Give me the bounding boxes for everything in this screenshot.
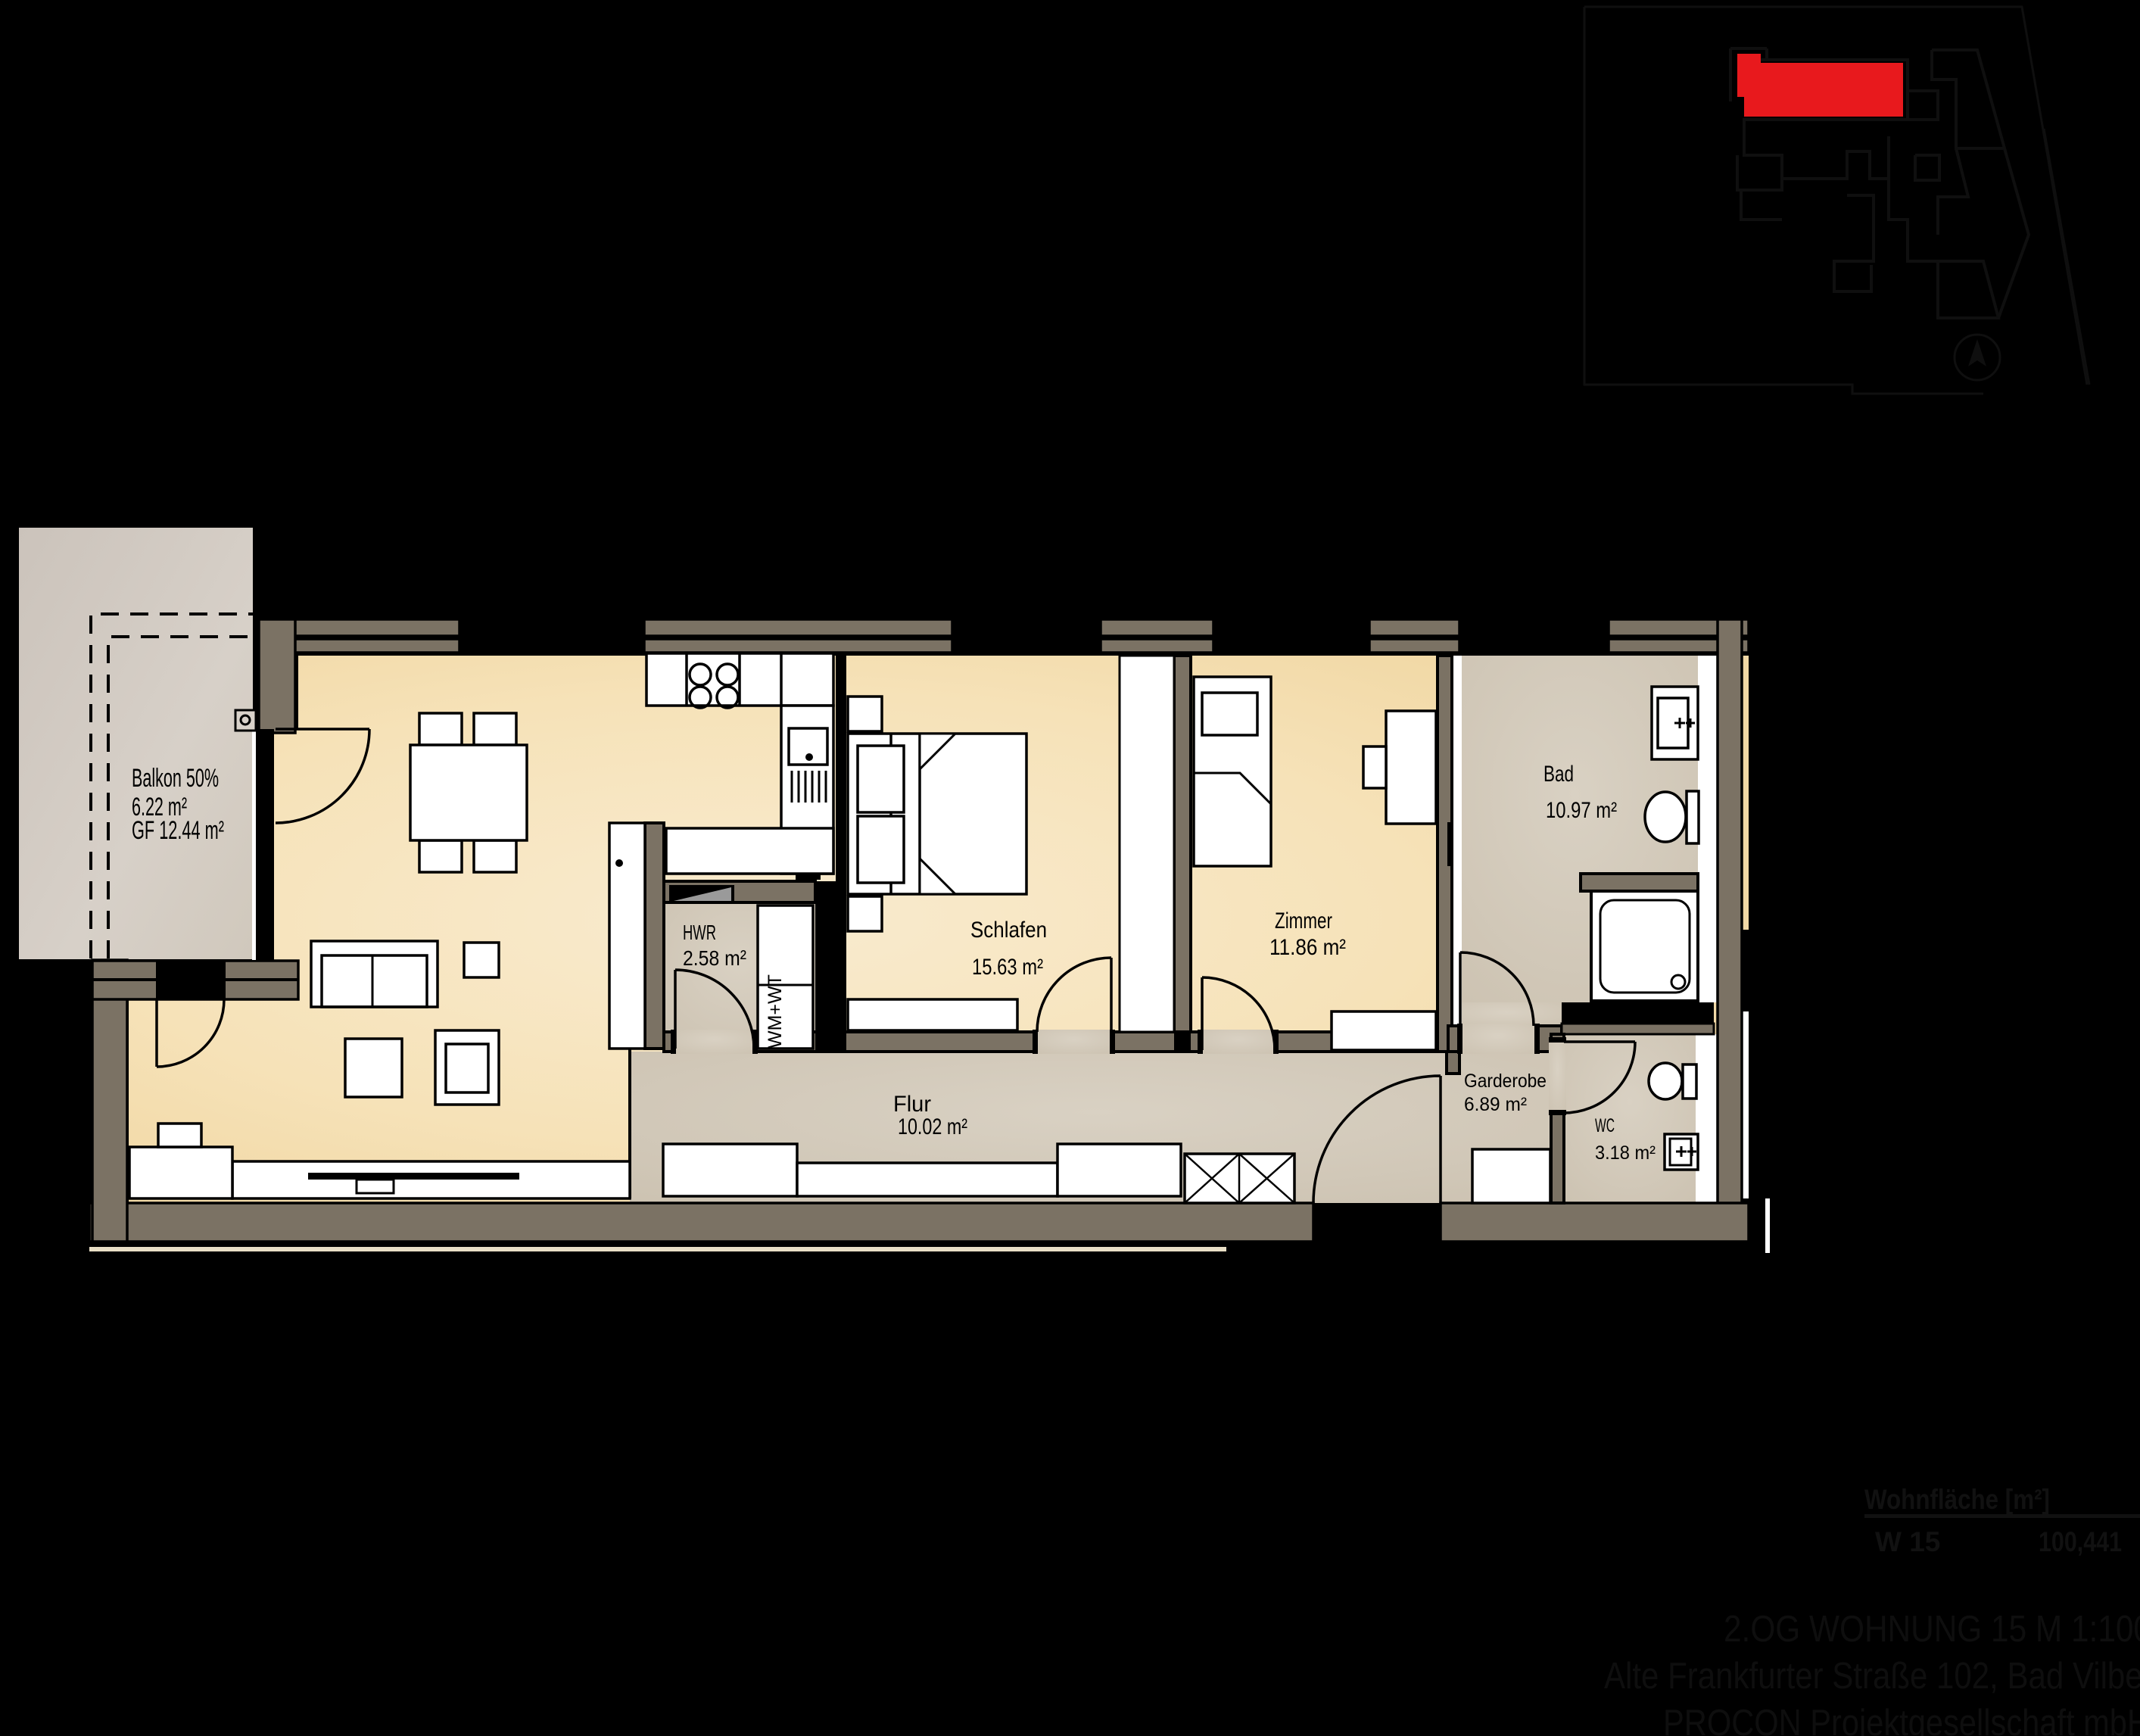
svg-text:Alte Frankfurter Straße 102, B: Alte Frankfurter Straße 102, Bad Vilbel: [1604, 1656, 2140, 1697]
svg-text:6.89 m²: 6.89 m²: [1464, 1094, 1527, 1115]
svg-text:Zimmer: Zimmer: [1275, 909, 1332, 933]
svg-text:10.02 m²: 10.02 m²: [898, 1114, 967, 1139]
svg-text:GF 12.44 m²: GF 12.44 m²: [132, 816, 224, 845]
svg-text:Garderobe: Garderobe: [1464, 1071, 1547, 1092]
svg-text:15.63 m²: 15.63 m²: [972, 955, 1043, 980]
svg-text:11.86 m²: 11.86 m²: [1269, 935, 1346, 960]
svg-text:2.58 m²: 2.58 m²: [683, 946, 746, 970]
svg-text:Balkon 50%: Balkon 50%: [132, 764, 219, 793]
svg-text:WM+WT: WM+WT: [765, 974, 786, 1049]
svg-text:Bad: Bad: [1543, 762, 1574, 787]
svg-text:100,441: 100,441: [2039, 1526, 2122, 1557]
svg-text:Schlafen: Schlafen: [970, 918, 1047, 943]
svg-text:Wohnfläche [m²]: Wohnfläche [m²]: [1864, 1484, 2050, 1515]
svg-text:2.OG WOHNUNG 15 M 1:100: 2.OG WOHNUNG 15 M 1:100: [1724, 1609, 2140, 1650]
svg-text:HWR: HWR: [683, 921, 716, 944]
svg-text:10.97 m²: 10.97 m²: [1546, 798, 1617, 823]
svg-text:PROCON Projektgesellschaft mbH: PROCON Projektgesellschaft mbH: [1663, 1703, 2140, 1736]
svg-text:Flur: Flur: [893, 1092, 931, 1117]
svg-text:W 15: W 15: [1875, 1526, 1940, 1557]
svg-text:3.18 m²: 3.18 m²: [1595, 1142, 1656, 1164]
svg-text:WC: WC: [1595, 1115, 1615, 1136]
